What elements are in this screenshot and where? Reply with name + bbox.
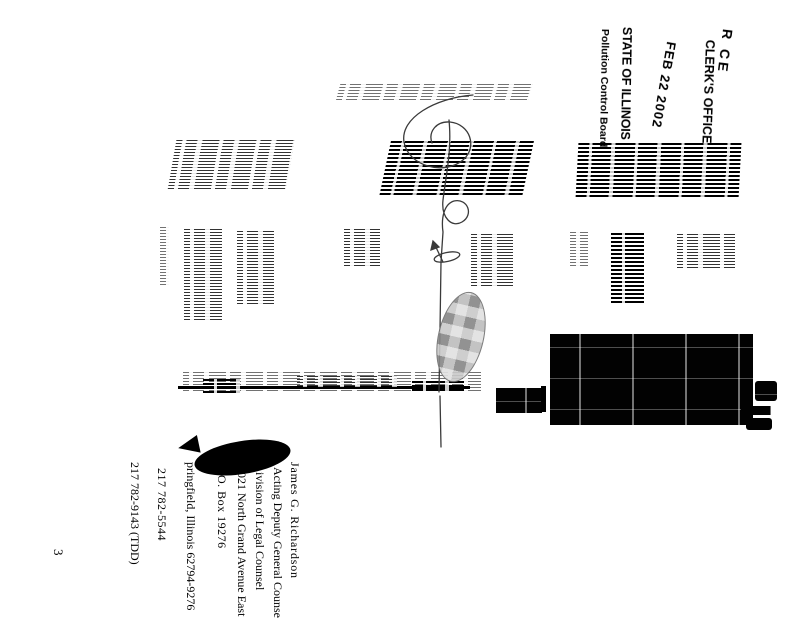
edge-glyph-mark: [741, 406, 771, 415]
pen-arrow-mark: [431, 241, 443, 262]
pen-ellipse-mark: [433, 250, 460, 264]
tdd-phone-number: 217 782-9143 (TDD): [129, 462, 141, 565]
smeared-text-block: [344, 229, 380, 268]
edge-glyph-mark: [746, 418, 772, 430]
signatory-division: ivision of Legal Counsel: [254, 472, 266, 590]
smeared-line-blob: [297, 376, 397, 387]
smeared-text-block: [471, 234, 513, 288]
smeared-text-block: [677, 234, 735, 268]
address-po-box: O. Box 19276: [216, 475, 228, 549]
smeared-line-blob: [203, 379, 240, 393]
smeared-text-block: [570, 232, 588, 268]
edge-glyph-mark: [755, 381, 777, 401]
smeared-text-block: [576, 143, 742, 198]
stamp-board-text: Pollution Control Board: [597, 29, 610, 148]
page-number: 3: [52, 549, 65, 556]
smeared-text-block: [160, 227, 169, 287]
blacked-out-box: [496, 388, 542, 413]
smeared-text-block: [168, 140, 295, 190]
blacked-out-region: [550, 334, 753, 425]
arrowhead-mark: [176, 435, 200, 457]
smeared-text-block: [237, 231, 274, 306]
smeared-text-block: [336, 84, 533, 101]
address-city: pringfield, Illinois 62794-9276: [185, 462, 197, 610]
scanned-document-page: R CE CLERK'S OFFICE FEB 22 2002 STATE OF…: [0, 0, 800, 618]
smeared-text-block: [611, 233, 644, 304]
stamp-received-text: R CE: [716, 28, 735, 75]
signatory-title: Acting Deputy General Counsel: [272, 467, 284, 618]
smeared-text-block: [184, 229, 222, 322]
signatory-name: James G. Richardson: [289, 462, 301, 579]
phone-number: 217 782-5544: [156, 468, 168, 541]
stamp-clerks-office-text: CLERK'S OFFICE: [700, 40, 716, 144]
smeared-text-block: [379, 141, 534, 197]
address-street: 021 North Grand Avenue East: [236, 472, 248, 616]
black-bar-mark: [541, 386, 546, 412]
stamp-state-text: STATE OF ILLINOIS: [619, 27, 633, 140]
stamp-date-text: FEB 22 2002: [650, 41, 678, 130]
smeared-line-blob: [412, 381, 464, 393]
